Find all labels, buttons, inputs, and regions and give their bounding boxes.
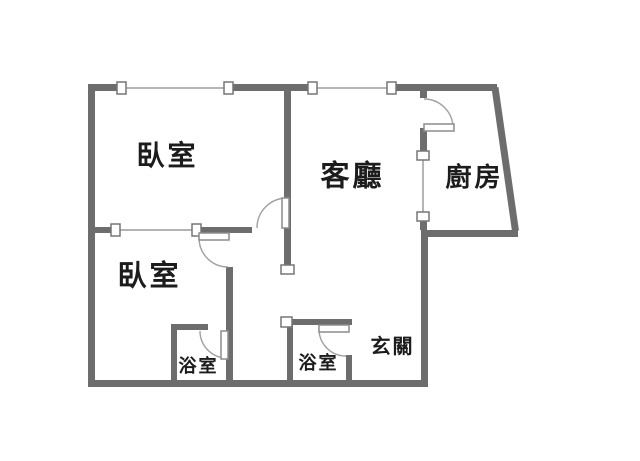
room-label-bathroom-1: 浴室 (176, 357, 219, 375)
floor-plan: 臥室 客廳 廚房 臥室 浴室 浴室 玄關 (0, 0, 640, 461)
wall-hallway (226, 267, 233, 380)
living-partial-wall-cap (281, 265, 294, 274)
wall-top-segment-2 (232, 84, 309, 91)
door-panel (221, 331, 228, 359)
door-panel (282, 198, 289, 228)
wall-left (88, 84, 95, 387)
door-swing-arc (199, 238, 228, 267)
wall-bathroom2-top (291, 319, 352, 325)
wall-bathroom2-left (287, 325, 293, 380)
room-label-entry-hall: 玄關 (368, 337, 415, 357)
kitchen-wall-window (417, 151, 429, 221)
wall-kitchen-left-stub (420, 91, 427, 98)
kitchen-door (424, 99, 454, 131)
room-label-kitchen: 廚房 (442, 164, 503, 190)
window-cap (117, 82, 126, 94)
wall-divider-segment-2 (196, 227, 252, 233)
bedroom-divider-window (111, 224, 201, 236)
bedroom-1-door (257, 198, 289, 228)
window-cap (308, 82, 317, 94)
window-cap (387, 82, 396, 94)
window-cap (224, 82, 233, 94)
bedroom-1-top-window (117, 82, 233, 94)
window-cap (417, 151, 429, 160)
bedroom-2-door (199, 233, 229, 267)
living-room-top-window (308, 82, 396, 94)
wall-right-lower (421, 230, 428, 387)
wall-top-segment-3 (395, 84, 497, 91)
wall-bathroom2-right (346, 355, 352, 380)
door-panel (319, 325, 349, 332)
bathroom2-wall-cap (281, 317, 292, 327)
room-label-living-room: 客廳 (317, 163, 384, 192)
window-cap (111, 224, 120, 236)
door-panel (199, 233, 229, 240)
room-label-bedroom-2: 臥室 (114, 263, 181, 292)
door-swing-arc (319, 329, 346, 356)
wall-top-segment-1 (88, 84, 118, 91)
room-label-bedroom-1: 臥室 (133, 142, 198, 170)
wall-end-caps (281, 265, 294, 327)
wall-slanted-right (495, 88, 516, 232)
bathroom-2-door (319, 325, 349, 356)
room-label-bathroom-2: 浴室 (296, 354, 339, 372)
wall-bottom (88, 380, 428, 387)
bathroom-1-door (200, 331, 228, 359)
wall-living-partial (284, 233, 291, 266)
window-cap (417, 212, 429, 221)
door-panel (424, 124, 454, 131)
wall-kitchen-bottom (421, 230, 518, 237)
floor-plan-drawing (0, 0, 640, 461)
